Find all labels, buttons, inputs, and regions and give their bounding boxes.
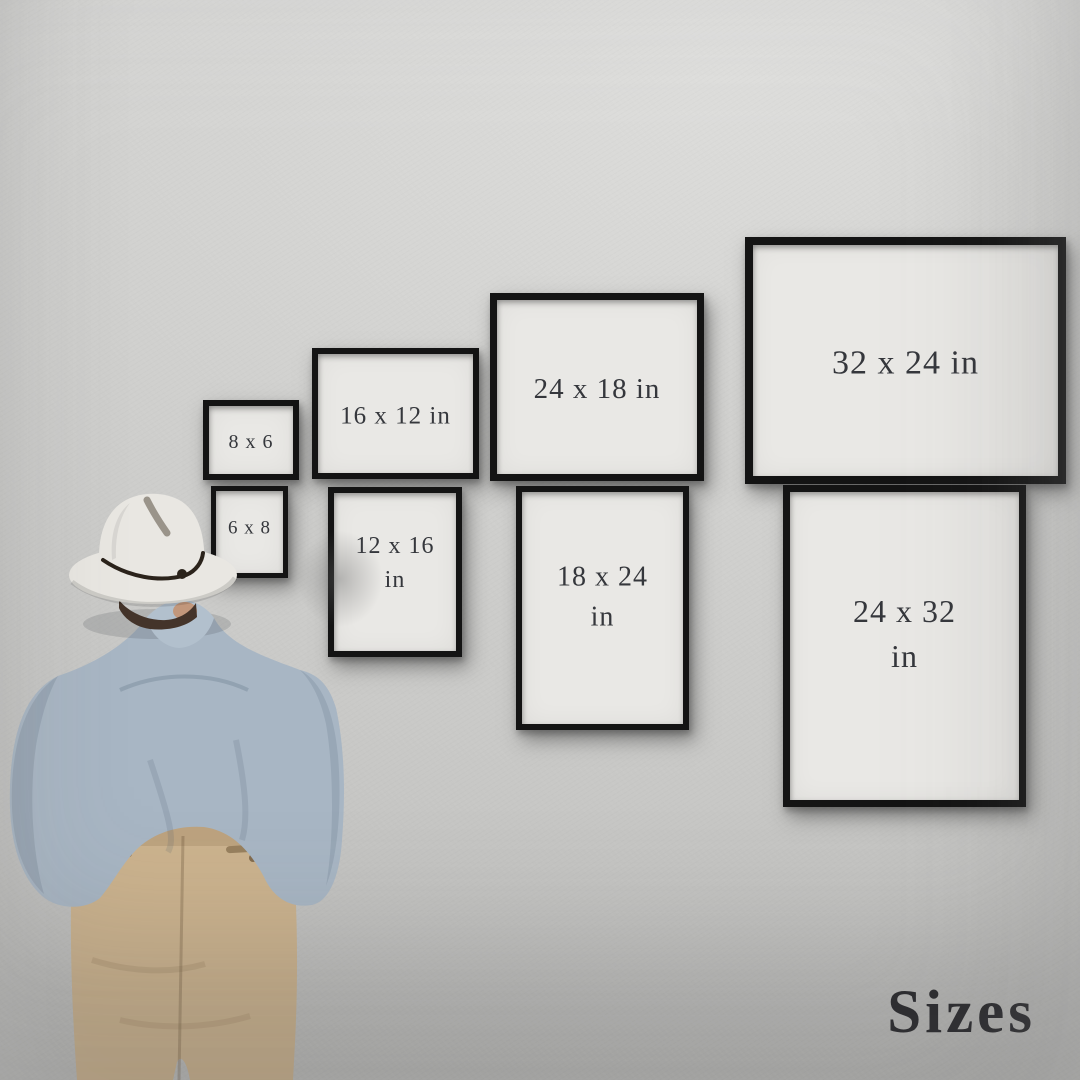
shirt-shade-left-arm — [12, 676, 58, 894]
frame-16x12: 16 x 12 in — [312, 348, 479, 479]
person-head — [119, 600, 197, 630]
sizes-caption: Sizes — [887, 978, 1036, 1048]
size-text: 8 x 6 — [229, 431, 274, 453]
hat-brim-underside — [72, 578, 235, 604]
shirt-collar — [146, 600, 214, 648]
frame-24x32-label: 24 x 32in — [853, 589, 956, 680]
frame-24x18-label: 24 x 18 in — [534, 369, 661, 410]
pants-fold — [120, 1016, 250, 1026]
frame-6x8-label: 6 x 8 — [228, 515, 271, 542]
pants-waistband — [73, 820, 292, 846]
size-text: 16 x 12 in — [340, 402, 451, 429]
hat-band-knot — [177, 569, 187, 579]
size-text: 18 x 24 — [557, 562, 648, 593]
size-text: 24 x 18 in — [534, 373, 661, 405]
frame-8x6: 8 x 6 — [203, 400, 299, 480]
frame-32x24: 32 x 24 in — [745, 237, 1066, 484]
pants-fold — [92, 960, 205, 970]
size-unit-text: in — [385, 567, 406, 593]
hat-crown-shade — [112, 503, 130, 560]
shirt-fold — [236, 740, 245, 840]
frame-8x6-label: 8 x 6 — [229, 428, 274, 456]
frame-6x8: 6 x 8 — [211, 486, 288, 578]
frame-12x16: 12 x 16in — [328, 487, 462, 657]
shirt-shade-right-arm — [300, 670, 340, 886]
hat-crown — [99, 494, 204, 578]
pants-pocket-left — [92, 849, 132, 858]
neck-skin — [173, 602, 197, 620]
hat-brim-shadow-on-shoulders — [83, 609, 231, 639]
frame-8x6-paper: 8 x 6 — [209, 406, 293, 474]
size-text: 24 x 32 — [853, 593, 956, 629]
shirt-yoke-seam — [120, 677, 248, 691]
frame-6x8-paper: 6 x 8 — [216, 491, 283, 573]
frame-16x12-paper: 16 x 12 in — [318, 354, 473, 473]
frame-12x16-label: 12 x 16in — [356, 529, 435, 597]
pants-pocket-right — [226, 844, 274, 854]
shirt-fold — [150, 760, 171, 852]
frame-16x12-label: 16 x 12 in — [340, 398, 451, 434]
size-unit-text: in — [591, 602, 615, 633]
pants-center-seam — [179, 836, 183, 1080]
frame-32x24-label: 32 x 24 in — [832, 340, 979, 388]
frame-24x32-paper: 24 x 32in — [790, 492, 1019, 800]
person-shirt — [10, 600, 344, 907]
frame-18x24-label: 18 x 24in — [557, 558, 648, 638]
size-text: 12 x 16 — [356, 533, 435, 559]
size-text: 6 x 8 — [228, 517, 271, 538]
pocket-button — [249, 854, 257, 862]
person-pants — [71, 820, 297, 1080]
hat-band-cord — [103, 553, 203, 579]
frame-18x24-paper: 18 x 24in — [522, 492, 683, 724]
frame-24x18-paper: 24 x 18 in — [497, 300, 697, 474]
frame-18x24: 18 x 24in — [516, 486, 689, 730]
frame-12x16-paper: 12 x 16in — [334, 493, 456, 651]
frame-24x32: 24 x 32in — [783, 485, 1026, 807]
wall-scene: 8 x 6 16 x 12 in 24 x 18 in 32 x 24 in 6… — [0, 0, 1080, 1080]
size-text: 32 x 24 in — [832, 345, 979, 382]
frame-32x24-paper: 32 x 24 in — [753, 245, 1058, 476]
frame-24x18: 24 x 18 in — [490, 293, 704, 481]
hat-crown-dent — [147, 500, 167, 533]
size-unit-text: in — [891, 638, 918, 674]
hair — [119, 600, 197, 630]
